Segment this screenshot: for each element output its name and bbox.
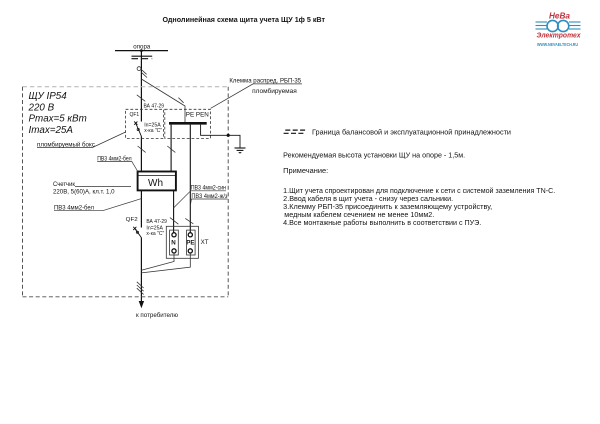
svg-text:Imax=25А: Imax=25А [29, 125, 74, 136]
svg-text:2.Ввод кабеля в щит учета - сн: 2.Ввод кабеля в щит учета - снизу через … [283, 195, 453, 203]
svg-text:ЩУ IP54: ЩУ IP54 [29, 91, 68, 102]
svg-text:ВА 47-29: ВА 47-29 [146, 219, 167, 225]
svg-text:к потребителю: к потребителю [136, 311, 178, 319]
svg-text:3.Клемму РБП-35 присоединить к: 3.Клемму РБП-35 присоединить к заземляющ… [283, 203, 492, 211]
svg-text:220В, 5(60)А, кл.т. 1,0: 220В, 5(60)А, кл.т. 1,0 [53, 189, 115, 196]
svg-text:Рекомендуемая высота установки: Рекомендуемая высота установки ЩУ на опо… [283, 153, 465, 160]
svg-text:пломбируемая: пломбируемая [252, 87, 297, 95]
svg-text:Wh: Wh [148, 178, 163, 189]
svg-text:Однолинейная схема щита учета: Однолинейная схема щита учета ЩУ 1ф 5 кВ… [163, 16, 326, 24]
svg-text:ПВ3 4мм2-бел: ПВ3 4мм2-бел [97, 156, 132, 162]
svg-text:N: N [171, 240, 176, 247]
svg-text:пломбируемый бокс: пломбируемый бокс [37, 141, 95, 149]
svg-text:Электротех: Электротех [537, 30, 582, 39]
svg-text:QF1: QF1 [130, 112, 140, 118]
svg-text:х-ка "С": х-ка "С" [144, 128, 162, 134]
svg-text:х-ка "С": х-ка "С" [146, 231, 164, 237]
svg-text:PE: PE [186, 240, 194, 247]
svg-text:медным кабелем сечением не мен: медным кабелем сечением не менее 10мм2. [284, 211, 434, 219]
svg-text:Pmax=5 кВт: Pmax=5 кВт [29, 114, 87, 125]
svg-text:WWW.NEVAELTECH.RU: WWW.NEVAELTECH.RU [537, 42, 578, 47]
svg-text:220 В: 220 В [28, 102, 55, 113]
svg-text:ВА 47-29: ВА 47-29 [144, 103, 165, 109]
svg-text:PE PEN: PE PEN [186, 111, 209, 118]
svg-text:Граница балансовой и эксплуата: Граница балансовой и эксплуатационной пр… [312, 128, 511, 136]
svg-text:ПВ3 4мм2-син: ПВ3 4мм2-син [191, 186, 226, 192]
svg-text:Клемма распред. РБП-35: Клемма распред. РБП-35 [229, 78, 301, 85]
svg-text:4.Все монтажные работы выполни: 4.Все монтажные работы выполнить в соотв… [283, 219, 481, 227]
svg-text:QF2: QF2 [126, 217, 138, 223]
svg-text:опора: опора [133, 43, 150, 50]
svg-text:Счетчик: Счетчик [53, 181, 75, 188]
svg-text:ПВ3 4мм2-ж/з: ПВ3 4мм2-ж/з [191, 194, 227, 200]
svg-text:XT: XT [201, 239, 209, 246]
svg-text:ПВ3 4мм2-бел: ПВ3 4мм2-бел [54, 206, 94, 212]
svg-text:НеВа: НеВа [549, 11, 570, 21]
svg-text:Примечание:: Примечание: [283, 168, 328, 175]
svg-text:1.Щит учета спроектирован для: 1.Щит учета спроектирован для подключени… [283, 187, 555, 195]
